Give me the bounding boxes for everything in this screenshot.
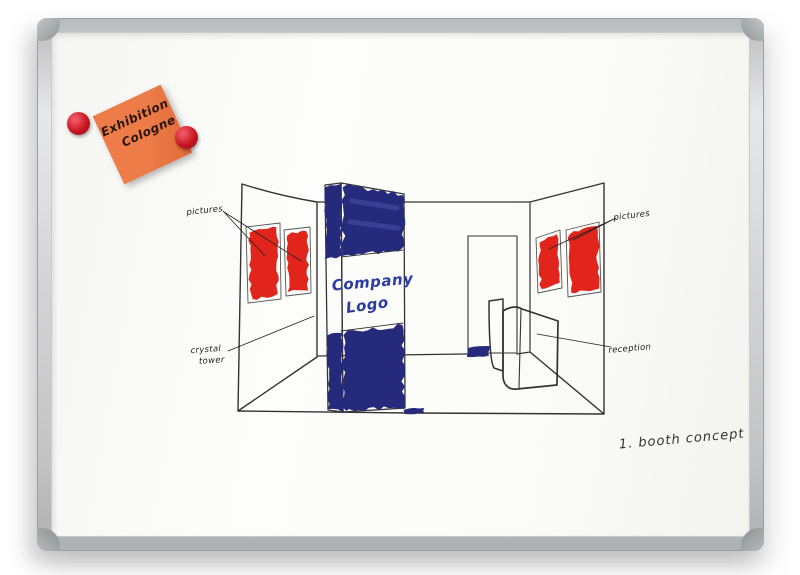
magnet-left (67, 112, 90, 135)
magnet-right (175, 126, 198, 149)
